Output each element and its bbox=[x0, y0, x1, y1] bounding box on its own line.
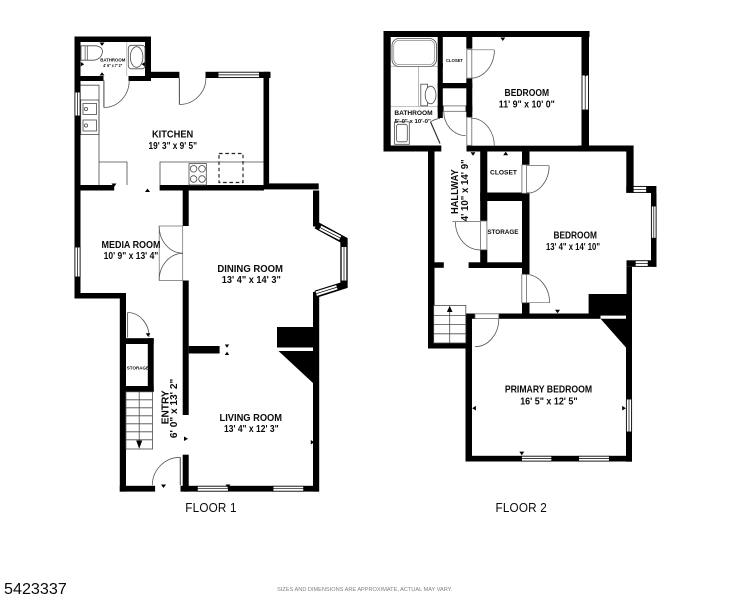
svg-text:KITCHEN: KITCHEN bbox=[152, 129, 193, 140]
svg-text:13' 4" x 14' 3": 13' 4" x 14' 3" bbox=[222, 275, 281, 286]
svg-text:10' 9" x 13' 4": 10' 9" x 13' 4" bbox=[104, 251, 159, 262]
svg-text:STORAGE: STORAGE bbox=[127, 365, 149, 370]
svg-text:LIVING ROOM: LIVING ROOM bbox=[220, 413, 283, 424]
svg-text:CLOSET: CLOSET bbox=[446, 58, 463, 64]
svg-text:STORAGE: STORAGE bbox=[487, 229, 518, 236]
svg-text:FLOOR 2: FLOOR 2 bbox=[496, 501, 547, 515]
svg-text:6' 0" x 13' 2": 6' 0" x 13' 2" bbox=[169, 379, 180, 439]
svg-text:4' 6" x 7' 2": 4' 6" x 7' 2" bbox=[103, 63, 122, 68]
svg-text:PRIMARY BEDROOM: PRIMARY BEDROOM bbox=[505, 385, 592, 396]
svg-text:16' 5" x 12' 5": 16' 5" x 12' 5" bbox=[520, 396, 577, 407]
svg-text:13' 4" x 14' 10": 13' 4" x 14' 10" bbox=[546, 242, 600, 253]
svg-text:SIZES AND DIMENSIONS ARE APPRO: SIZES AND DIMENSIONS ARE APPROXIMATE, AC… bbox=[277, 587, 453, 593]
svg-text:BATHROOM: BATHROOM bbox=[394, 110, 432, 117]
svg-text:5'-0" x 10'-0": 5'-0" x 10'-0" bbox=[395, 119, 431, 125]
svg-text:CLOSET: CLOSET bbox=[490, 169, 517, 176]
svg-text:11' 9" x 10' 0": 11' 9" x 10' 0" bbox=[499, 99, 555, 110]
svg-text:BEDROOM: BEDROOM bbox=[505, 88, 550, 99]
svg-text:19' 3" x 9' 5": 19' 3" x 9' 5" bbox=[149, 141, 198, 152]
svg-text:FLOOR 1: FLOOR 1 bbox=[185, 501, 236, 515]
svg-text:13' 4" x 12' 3": 13' 4" x 12' 3" bbox=[224, 424, 279, 435]
svg-text:4' 10" x 14' 9": 4' 10" x 14' 9" bbox=[460, 159, 471, 221]
svg-text:MEDIA ROOM: MEDIA ROOM bbox=[102, 240, 161, 251]
svg-text:BEDROOM: BEDROOM bbox=[553, 231, 597, 242]
svg-text:DINING ROOM: DINING ROOM bbox=[217, 264, 283, 275]
svg-text:5423337: 5423337 bbox=[4, 581, 67, 598]
